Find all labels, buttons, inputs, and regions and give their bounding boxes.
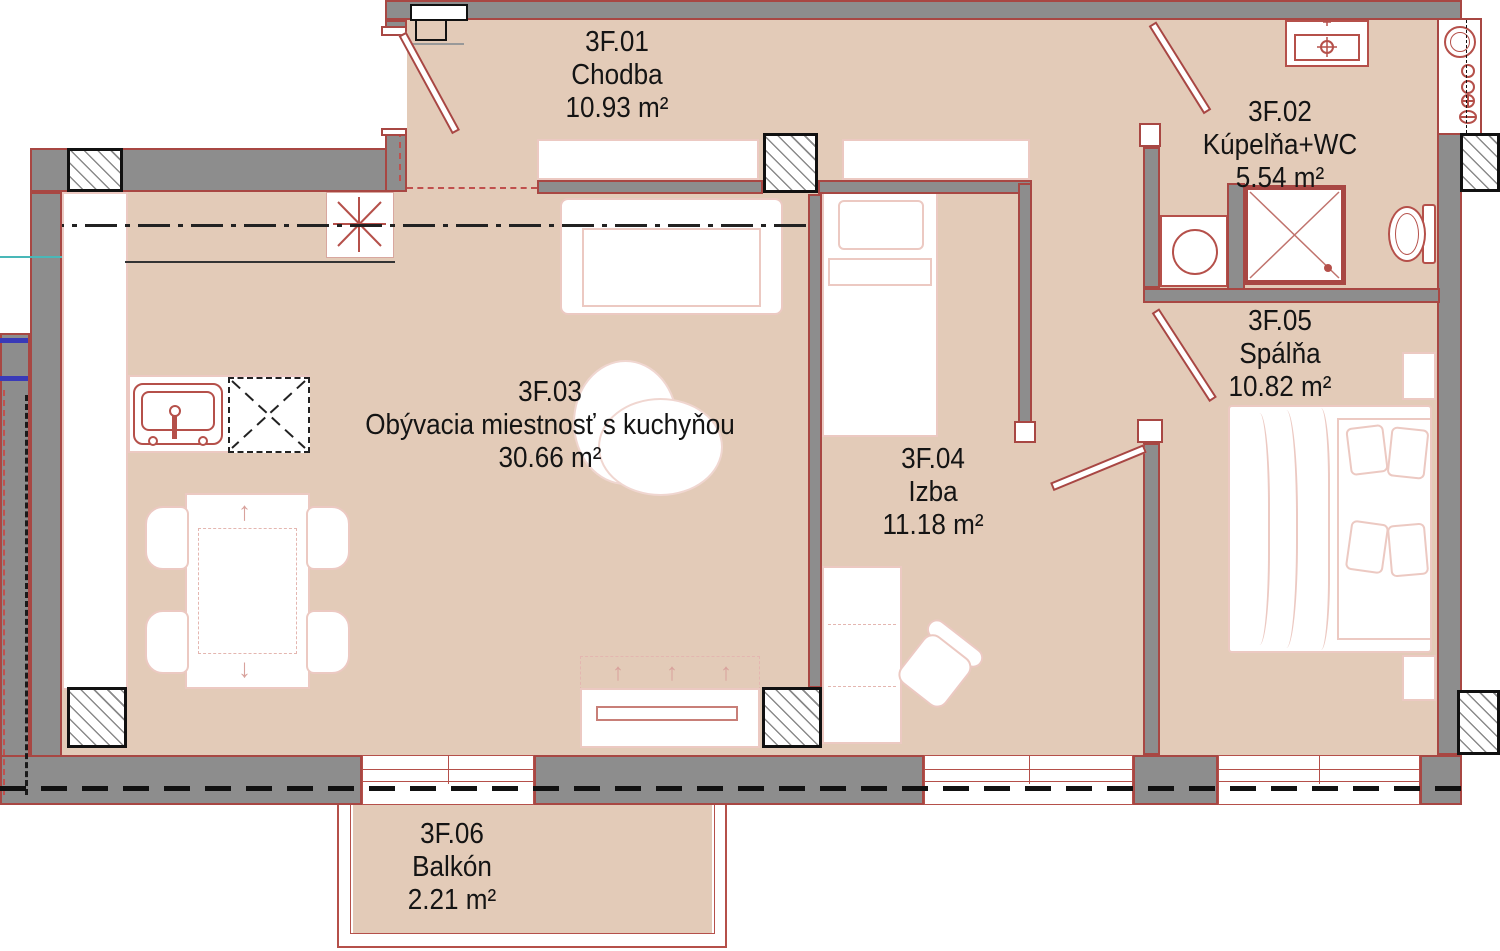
entry-underline [412,43,464,45]
dishwasher-x-icon [230,379,307,450]
room-label-balkon: 3F.06 Balkón 2.21 m² [408,818,496,917]
kitchen-counter [62,192,128,690]
bed-pillow [1386,426,1429,480]
room-id: 3F.06 [408,818,496,851]
wall-exterior-bottom [1133,755,1218,805]
dining-chair [306,506,350,570]
wall-hallway-living [537,180,763,194]
dining-table-inner [198,528,297,654]
bedside-table [1402,655,1436,701]
utility-line-blue [0,376,28,381]
bed-pillow [1345,424,1389,476]
wall-corridor-bedroom [1143,443,1160,755]
table-extend-up-arrow: ↑ [238,498,251,524]
dishwasher-dashed [228,377,310,453]
faucet-icon [1285,15,1369,67]
duct-shaft [1460,133,1500,192]
room-area: 10.82 m² [1228,371,1331,404]
single-bed-pillow [838,200,924,250]
entry-opening [383,33,407,131]
counter-front-edge [125,261,395,263]
blanket-fold [1244,413,1270,645]
room-name: Spálňa [1228,338,1331,371]
room-area: 2.21 m² [408,884,496,917]
room-id: 3F.04 [882,443,983,476]
edge-dashed-red [3,390,5,795]
entry-canopy [410,4,468,21]
pillar [1457,690,1500,755]
room-area: 10.93 m² [565,92,668,125]
sink-knob [148,436,158,446]
room-label-izba: 3F.04 Izba 11.18 m² [882,443,983,542]
wall-exterior-bottom [534,755,924,805]
wall-entry-stub [385,131,407,192]
blanket-fold [1300,408,1330,650]
sink-knob [198,436,208,446]
wall-exterior-bottom [1420,755,1462,805]
wall-corridor-bathroom [1143,147,1160,288]
shaft-axis-line [1466,20,1467,133]
desk-drawer-line [828,686,896,687]
utility-line-teal [0,256,62,258]
facade-dashed-line [0,786,1462,791]
pipe-small [1461,64,1475,78]
wall-bathroom-bedroom [1143,288,1440,303]
wall-living-izba [808,194,822,688]
pillar [67,148,123,192]
cabinet-open-arrow: ↑ [666,660,678,686]
section-line [32,224,820,227]
room-area: 30.66 m² [365,442,735,475]
room-label-spalna: 3F.05 Spálňa 10.82 m² [1228,305,1331,404]
pillar [67,687,127,748]
room-name: Izba [882,476,983,509]
floor-plan: ↑ ↓ ↑ ↑ ↑ [0,0,1500,951]
pillar [762,687,822,748]
dining-chair [145,610,189,674]
desk [822,566,902,744]
hall-wardrobe [537,139,759,180]
toilet-bowl [1388,206,1426,262]
door-jamb [1137,419,1163,443]
room-id: 3F.02 [1203,96,1358,129]
room-label-chodba: 3F.01 Chodba 10.93 m² [565,26,668,125]
sofa [560,198,783,315]
wall-exterior-bottom [0,755,362,805]
room-area: 5.54 m² [1203,162,1358,195]
pipe-small [1461,80,1475,94]
table-extend-down-arrow: ↓ [238,655,251,681]
wall-exterior-left [30,192,62,757]
bedside-table [1402,352,1436,400]
izba-window [924,755,1133,805]
room-id: 3F.01 [565,26,668,59]
toilet-seat [1395,213,1419,255]
cabinet-open-arrow: ↑ [720,660,732,686]
wall-hallway-izba [818,180,1032,194]
bed-pillow [1345,520,1390,575]
balcony-door-window [362,755,534,805]
hall-wardrobe [842,139,1030,180]
hall-boundary-dashed [407,187,537,189]
shower-x-icon [1248,190,1341,280]
room-label-kupelna: 3F.02 Kúpelňa+WC 5.54 m² [1203,96,1358,195]
wall-shower-stub [1227,183,1245,290]
pipe-large [1444,26,1476,58]
dining-chair [145,506,189,570]
edge-dashed-black [25,395,28,795]
room-name: Chodba [565,59,668,92]
entry-boundary-dashed [399,131,401,181]
door-jamb [1139,123,1161,147]
shower [1243,185,1346,285]
room-label-obyvacia: 3F.03 Obývacia miestnosť s kuchyňou 30.6… [365,376,735,475]
room-area: 11.18 m² [882,509,983,542]
washing-machine-drum [1172,229,1218,275]
door-jamb [1014,421,1036,443]
wall-exterior-top [385,0,1462,20]
tv-screen [596,706,738,721]
pipe-valve-cross [1461,94,1475,108]
sofa-seat [582,228,761,307]
dining-chair [306,610,350,674]
pipe-valve-line [1459,110,1477,124]
room-id: 3F.03 [365,376,735,409]
room-id: 3F.05 [1228,305,1331,338]
desk-drawer-line [828,624,896,625]
balcony-inner-rail [350,800,715,934]
utility-line-blue [0,338,28,343]
entry-bracket [415,21,447,41]
bedroom-window [1218,755,1420,805]
room-name: Balkón [408,851,496,884]
bed-pillow [1387,522,1429,577]
door-jamb [381,128,407,136]
washing-machine [1160,215,1228,287]
room-name: Kúpelňa+WC [1203,129,1358,162]
blanket-fold [1272,410,1298,648]
room-name: Obývacia miestnosť s kuchyňou [365,409,735,442]
pillar [763,133,818,193]
pipe-shaft [1437,18,1482,135]
wall-izba-corridor [1018,183,1032,425]
single-bed-blanket-fold [828,258,932,286]
sink-tap-head [169,405,181,417]
cabinet-open-arrow: ↑ [612,660,624,686]
